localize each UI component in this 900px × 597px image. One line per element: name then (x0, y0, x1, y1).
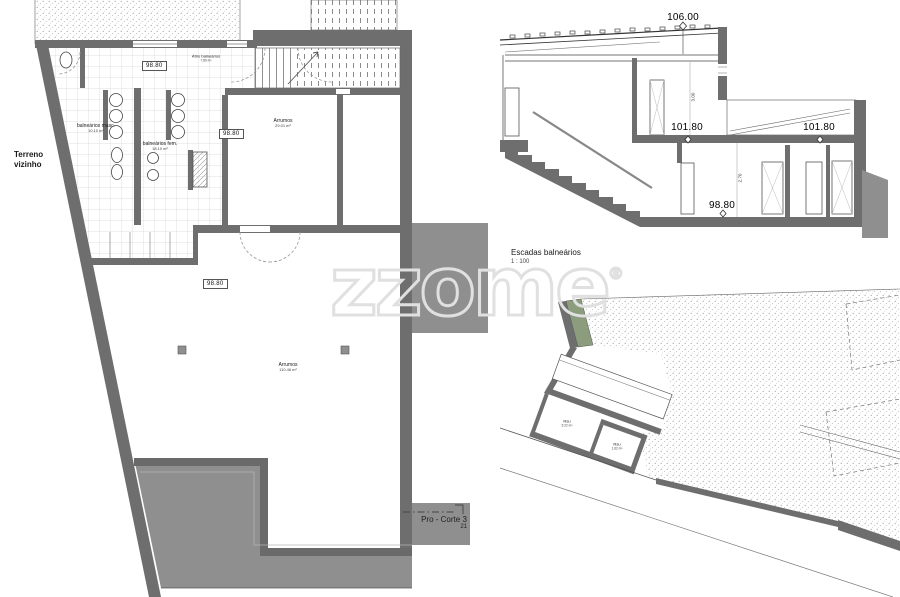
column (341, 346, 349, 354)
room-label-masc: balneários masc. 10.10 m² (77, 124, 115, 135)
room-label-fem: balneários fem. 18.10 m² (143, 142, 177, 153)
section-level-roof: 106.00 (667, 12, 699, 24)
architectural-drawing-sheet: Terreno vizinho 98.80 98.80 98.80 Átrio … (0, 0, 900, 597)
level-tag-storage-lower: 98.80 (203, 279, 228, 289)
section-level-upper-right: 101.80 (803, 122, 835, 134)
section-level-upper-left: 101.80 (671, 122, 703, 134)
column (178, 346, 186, 354)
level-tag-storage-upper: 98.80 (219, 129, 244, 139)
section-earth-right (862, 170, 888, 238)
stair-header-wall (253, 30, 412, 46)
section-dim-upper: 3.00 (690, 92, 696, 101)
room-label-rsu-large: Rsu 5.22 m² (562, 420, 573, 429)
room-label-rsu-small: Rsu 1.62 m² (612, 443, 623, 452)
section-level-floor: 98.80 (709, 200, 735, 212)
interior-staircase (255, 48, 400, 88)
section-dim-lower: 2.70 (737, 173, 743, 182)
watermark-logo: zzome® (330, 240, 624, 335)
ground-hatch (35, 0, 240, 42)
section-stairs (500, 112, 652, 227)
room-label-storage-upper: Arrumos 29.01 m² (273, 119, 292, 130)
neighbor-terrain-label: Terreno vizinho (14, 150, 43, 170)
site-plan-drawing (500, 289, 900, 597)
registered-mark: ® (608, 264, 624, 283)
section-upper-door (650, 80, 664, 135)
room-label-storage-lower: Arrumos 110.46 m² (278, 363, 297, 374)
room-label-atrio: Átrio balneários 7.80 m² (192, 55, 220, 64)
level-tag-hall: 98.80 (142, 61, 167, 71)
exterior-stair-above (311, 0, 397, 30)
section-marker-sheet: 21 (415, 524, 467, 531)
